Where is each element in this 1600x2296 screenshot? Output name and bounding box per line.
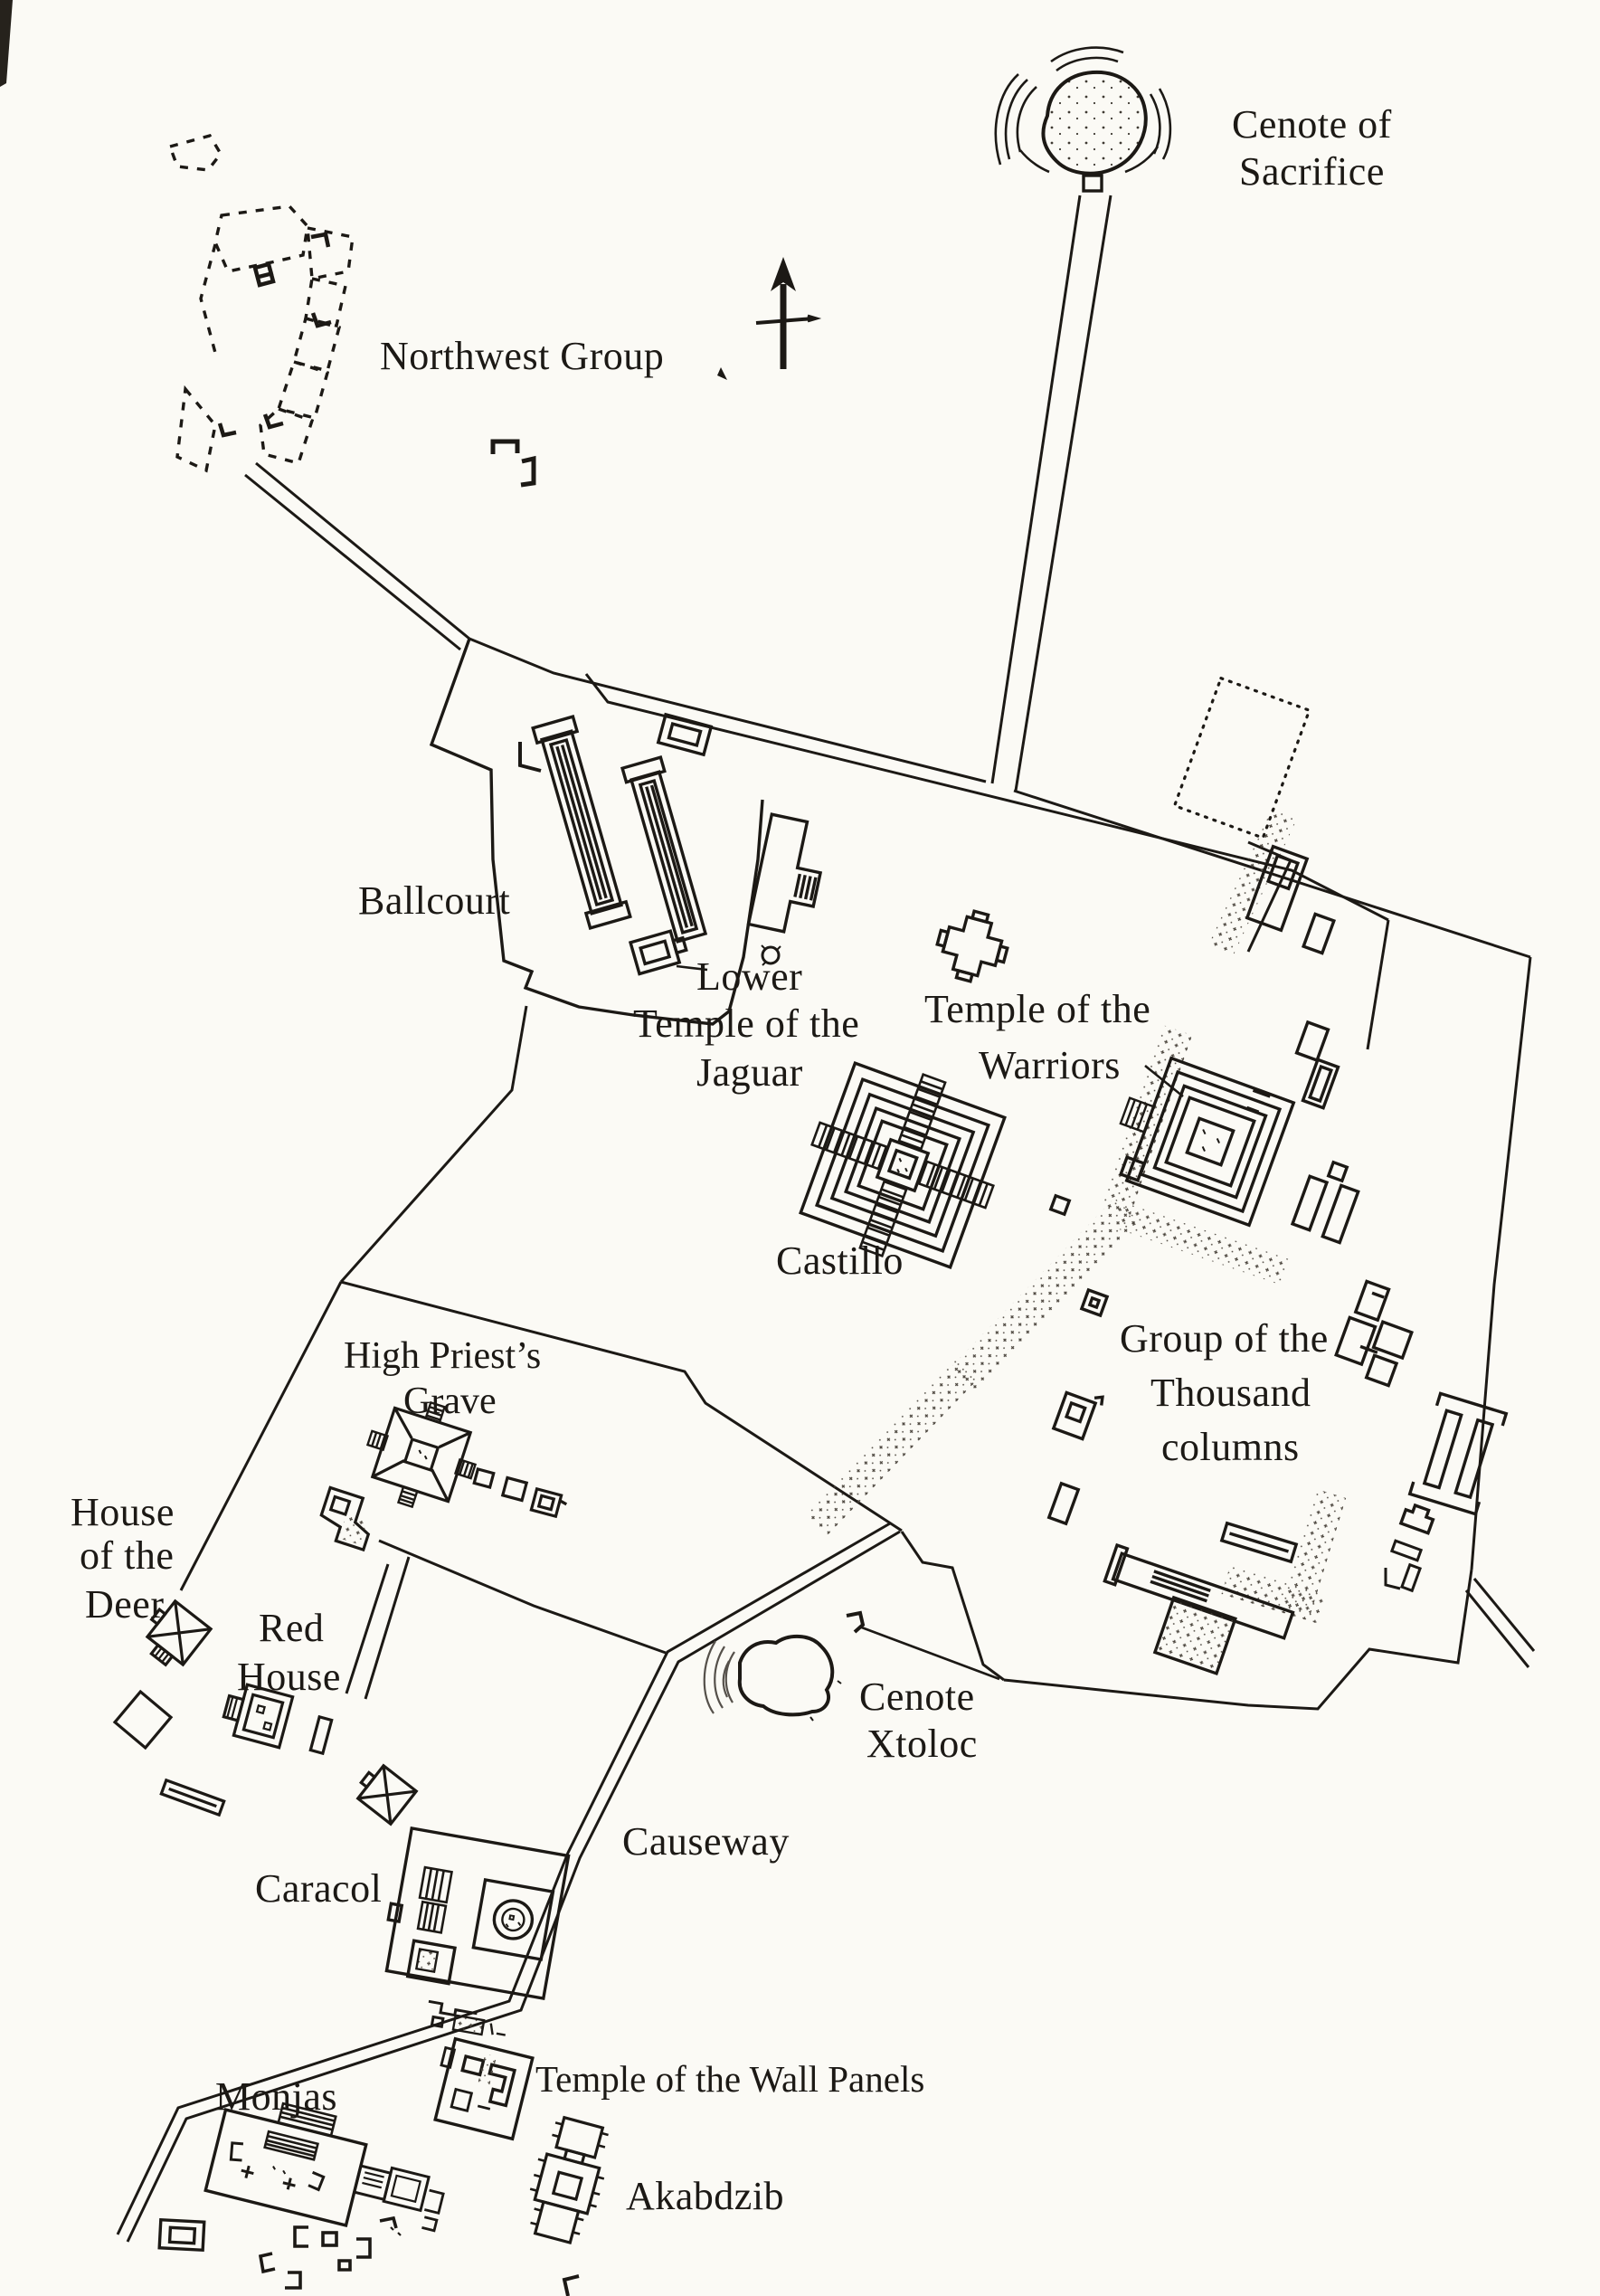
caracol-south-ruins xyxy=(424,2001,508,2038)
label-cenote-of-sacrifice-line2: Sacrifice xyxy=(1239,149,1385,194)
xtoloc-dots xyxy=(810,1681,841,1721)
small-south-marks xyxy=(1386,1541,1421,1590)
small-square-d xyxy=(1329,1162,1348,1181)
west-gallery-bar xyxy=(1222,1523,1296,1562)
label-thousand-columns-line1: Group of the xyxy=(1120,1316,1329,1361)
colonnade-bar-a xyxy=(1303,1059,1339,1107)
label-monjas: Monjas xyxy=(215,2074,337,2119)
monjas-south-ruins xyxy=(260,2218,401,2288)
label-warriors-line2: Warriors xyxy=(979,1043,1121,1087)
north-arrow-icon xyxy=(717,257,817,380)
ballcourt-plaza-link xyxy=(341,1006,526,1282)
southwest-platform-structure xyxy=(315,1487,378,1550)
northeast-terrace-corner xyxy=(1368,920,1388,1049)
label-house-of-the-deer-line3: Deer xyxy=(85,1582,165,1627)
label-red-house-line1: Red xyxy=(259,1606,324,1650)
label-ballcourt: Ballcourt xyxy=(358,878,510,923)
causeways xyxy=(118,195,1534,2242)
colonnade-bar-d xyxy=(1322,1185,1358,1242)
label-red-house-line2: House xyxy=(237,1655,341,1699)
label-cenote-xtoloc-line2: Xtoloc xyxy=(866,1722,978,1766)
dotted-square-platform xyxy=(1175,678,1310,839)
label-high-priests-grave-line1: High Priest’s xyxy=(344,1335,541,1377)
label-causeway: Causeway xyxy=(622,1819,790,1864)
label-lower-temple-line2: Temple of the xyxy=(633,1001,859,1046)
plaza-south-edge xyxy=(379,1541,666,1653)
cenote-xtoloc-structure xyxy=(705,1613,863,1721)
south-edge-bracket xyxy=(564,2276,579,2296)
fan-platform-structure xyxy=(1401,1503,1435,1532)
plaza-west-edge xyxy=(181,1282,341,1590)
label-thousand-columns-line3: columns xyxy=(1161,1425,1300,1469)
northwest-group-solid-marks xyxy=(220,234,331,435)
caracol-complex xyxy=(379,1827,568,2039)
colonnade-bar-c xyxy=(1292,1176,1327,1229)
nw-causeway-line2 xyxy=(245,475,460,650)
small-annex-structure xyxy=(1303,914,1334,953)
label-castillo: Castillo xyxy=(776,1238,904,1283)
akabdzib-structure xyxy=(519,2114,617,2247)
scan-edge-artifact xyxy=(0,0,13,87)
south-causeway-line1 xyxy=(118,1523,890,2234)
small-double-rect-structure xyxy=(159,2220,204,2250)
label-cenote-of-sacrifice-line1: Cenote of xyxy=(1232,102,1392,147)
cenote-of-sacrifice-structure xyxy=(996,48,1170,191)
plain-platform-structure xyxy=(115,1692,171,1748)
caracol-causeway-line2 xyxy=(365,1557,409,1699)
east-boundary xyxy=(1472,957,1530,1570)
columns-ballcourt-structure xyxy=(1410,1393,1507,1513)
small-bar-structure xyxy=(310,1717,331,1753)
sacbe-cenote-line-east xyxy=(1016,195,1111,791)
label-temple-wall-panels: Temple of the Wall Panels xyxy=(535,2058,924,2100)
label-house-of-the-deer-line1: House xyxy=(71,1490,175,1534)
ballcourt-west-wall xyxy=(533,716,630,928)
temple-wall-panels-structure xyxy=(428,2037,532,2139)
sacbe-cenote-line-west xyxy=(992,195,1080,783)
central-cluster-structures xyxy=(1332,1280,1423,1387)
nw-causeway-line1 xyxy=(256,463,469,639)
ballcourt-east-wall xyxy=(622,757,711,943)
label-lower-temple-line1: Lower xyxy=(696,954,802,999)
label-caracol: Caracol xyxy=(255,1866,382,1911)
cross-platform-structure xyxy=(930,904,1014,988)
small-pyramid-structure xyxy=(352,1761,416,1824)
small-plaza-altars xyxy=(474,1469,568,1518)
xtoloc-contour-lines xyxy=(705,1641,734,1713)
map-page: Cenote of Sacrifice Northwest Group Ball… xyxy=(0,0,1600,2296)
monjas-east-annex xyxy=(350,2160,447,2231)
site-map-canvas: Cenote of Sacrifice Northwest Group Ball… xyxy=(0,0,1600,2296)
small-bracket-structures xyxy=(493,441,534,485)
small-altar-c xyxy=(1082,1290,1107,1315)
mercado-patio-structure xyxy=(1155,1598,1236,1674)
caracol-causeway-line1 xyxy=(346,1564,388,1694)
label-thousand-columns-line2: Thousand xyxy=(1150,1371,1311,1415)
platform-inner-bracket xyxy=(520,742,541,771)
north-temple-structure xyxy=(658,715,712,754)
long-thin-bar-structure xyxy=(161,1780,223,1815)
label-cenote-xtoloc-line1: Cenote xyxy=(859,1675,975,1719)
se-causeway-line2 xyxy=(1466,1590,1529,1667)
label-northwest-group: Northwest Group xyxy=(380,334,664,378)
colonnade-bar-b xyxy=(1297,1022,1329,1060)
caracol-structure xyxy=(379,1827,568,2000)
label-akabdzib: Akabdzib xyxy=(626,2174,784,2218)
se-causeway-line1 xyxy=(1474,1579,1534,1651)
label-house-of-the-deer-line2: of the xyxy=(80,1533,174,1578)
xtoloc-boundary xyxy=(902,1532,1004,1680)
south-colonnade-stipple xyxy=(1221,1489,1346,1623)
label-warriors-line1: Temple of the xyxy=(924,987,1150,1031)
cenote-stair-notch xyxy=(1084,176,1102,191)
west-bar-structure xyxy=(1049,1484,1078,1523)
label-high-priests-grave-line2: Grave xyxy=(403,1380,497,1422)
northwest-group-structures xyxy=(170,136,353,470)
small-altar-b xyxy=(1051,1196,1070,1215)
xtoloc-small-bracket xyxy=(847,1613,863,1632)
west-altar-structure xyxy=(1054,1385,1104,1441)
label-lower-temple-line3: Jaguar xyxy=(696,1050,803,1095)
